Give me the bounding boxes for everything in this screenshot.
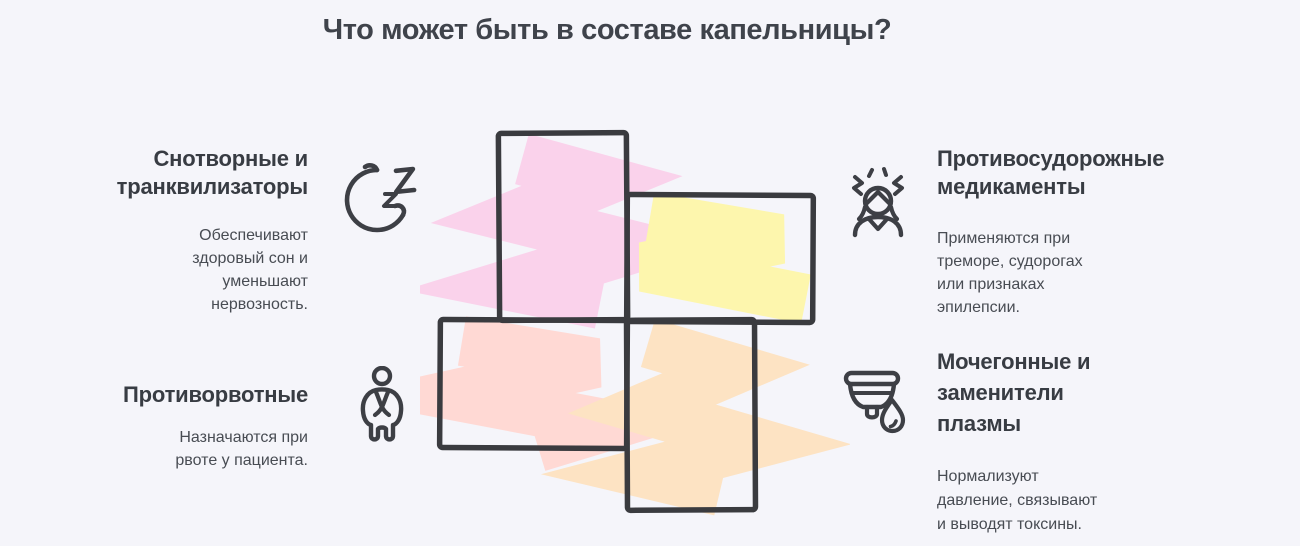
section-heading-sedatives: Снотворные и транквилизаторы [62,145,308,201]
panel-top-fill [510,159,634,303]
infographic-canvas: Что может быть в составе капельницы? Сно… [0,0,1300,546]
panel-bottom-fill [642,343,758,491]
page-title: Что может быть в составе капельницы? [0,14,1214,47]
panel-right-fill [644,217,806,299]
cross-pinwheel-graphic [420,115,850,525]
section-description-plasma-diuretics: Нормализуют давление, связывают и выводя… [937,465,1247,537]
tremor-person-icon [843,160,913,242]
section-heading-anticonvulsants: Противосудорожные медикаменты [937,145,1247,201]
section-description-sedatives: Обеспечивают здоровый сон и уменьшают не… [62,224,308,316]
section-description-antiemetics: Назначаются при рвоте у пациента. [62,426,308,472]
section-heading-plasma-diuretics: Мочегонные и заменители плазмы [937,346,1247,439]
section-heading-antiemetics: Противорвотные [62,381,308,409]
cup-droplet-icon [842,366,908,436]
section-description-anticonvulsants: Применяются при треморе, судорогах или п… [937,227,1247,319]
panel-left-fill [452,341,610,447]
moon-zzz-icon [340,158,428,246]
nausea-person-icon [358,366,406,444]
